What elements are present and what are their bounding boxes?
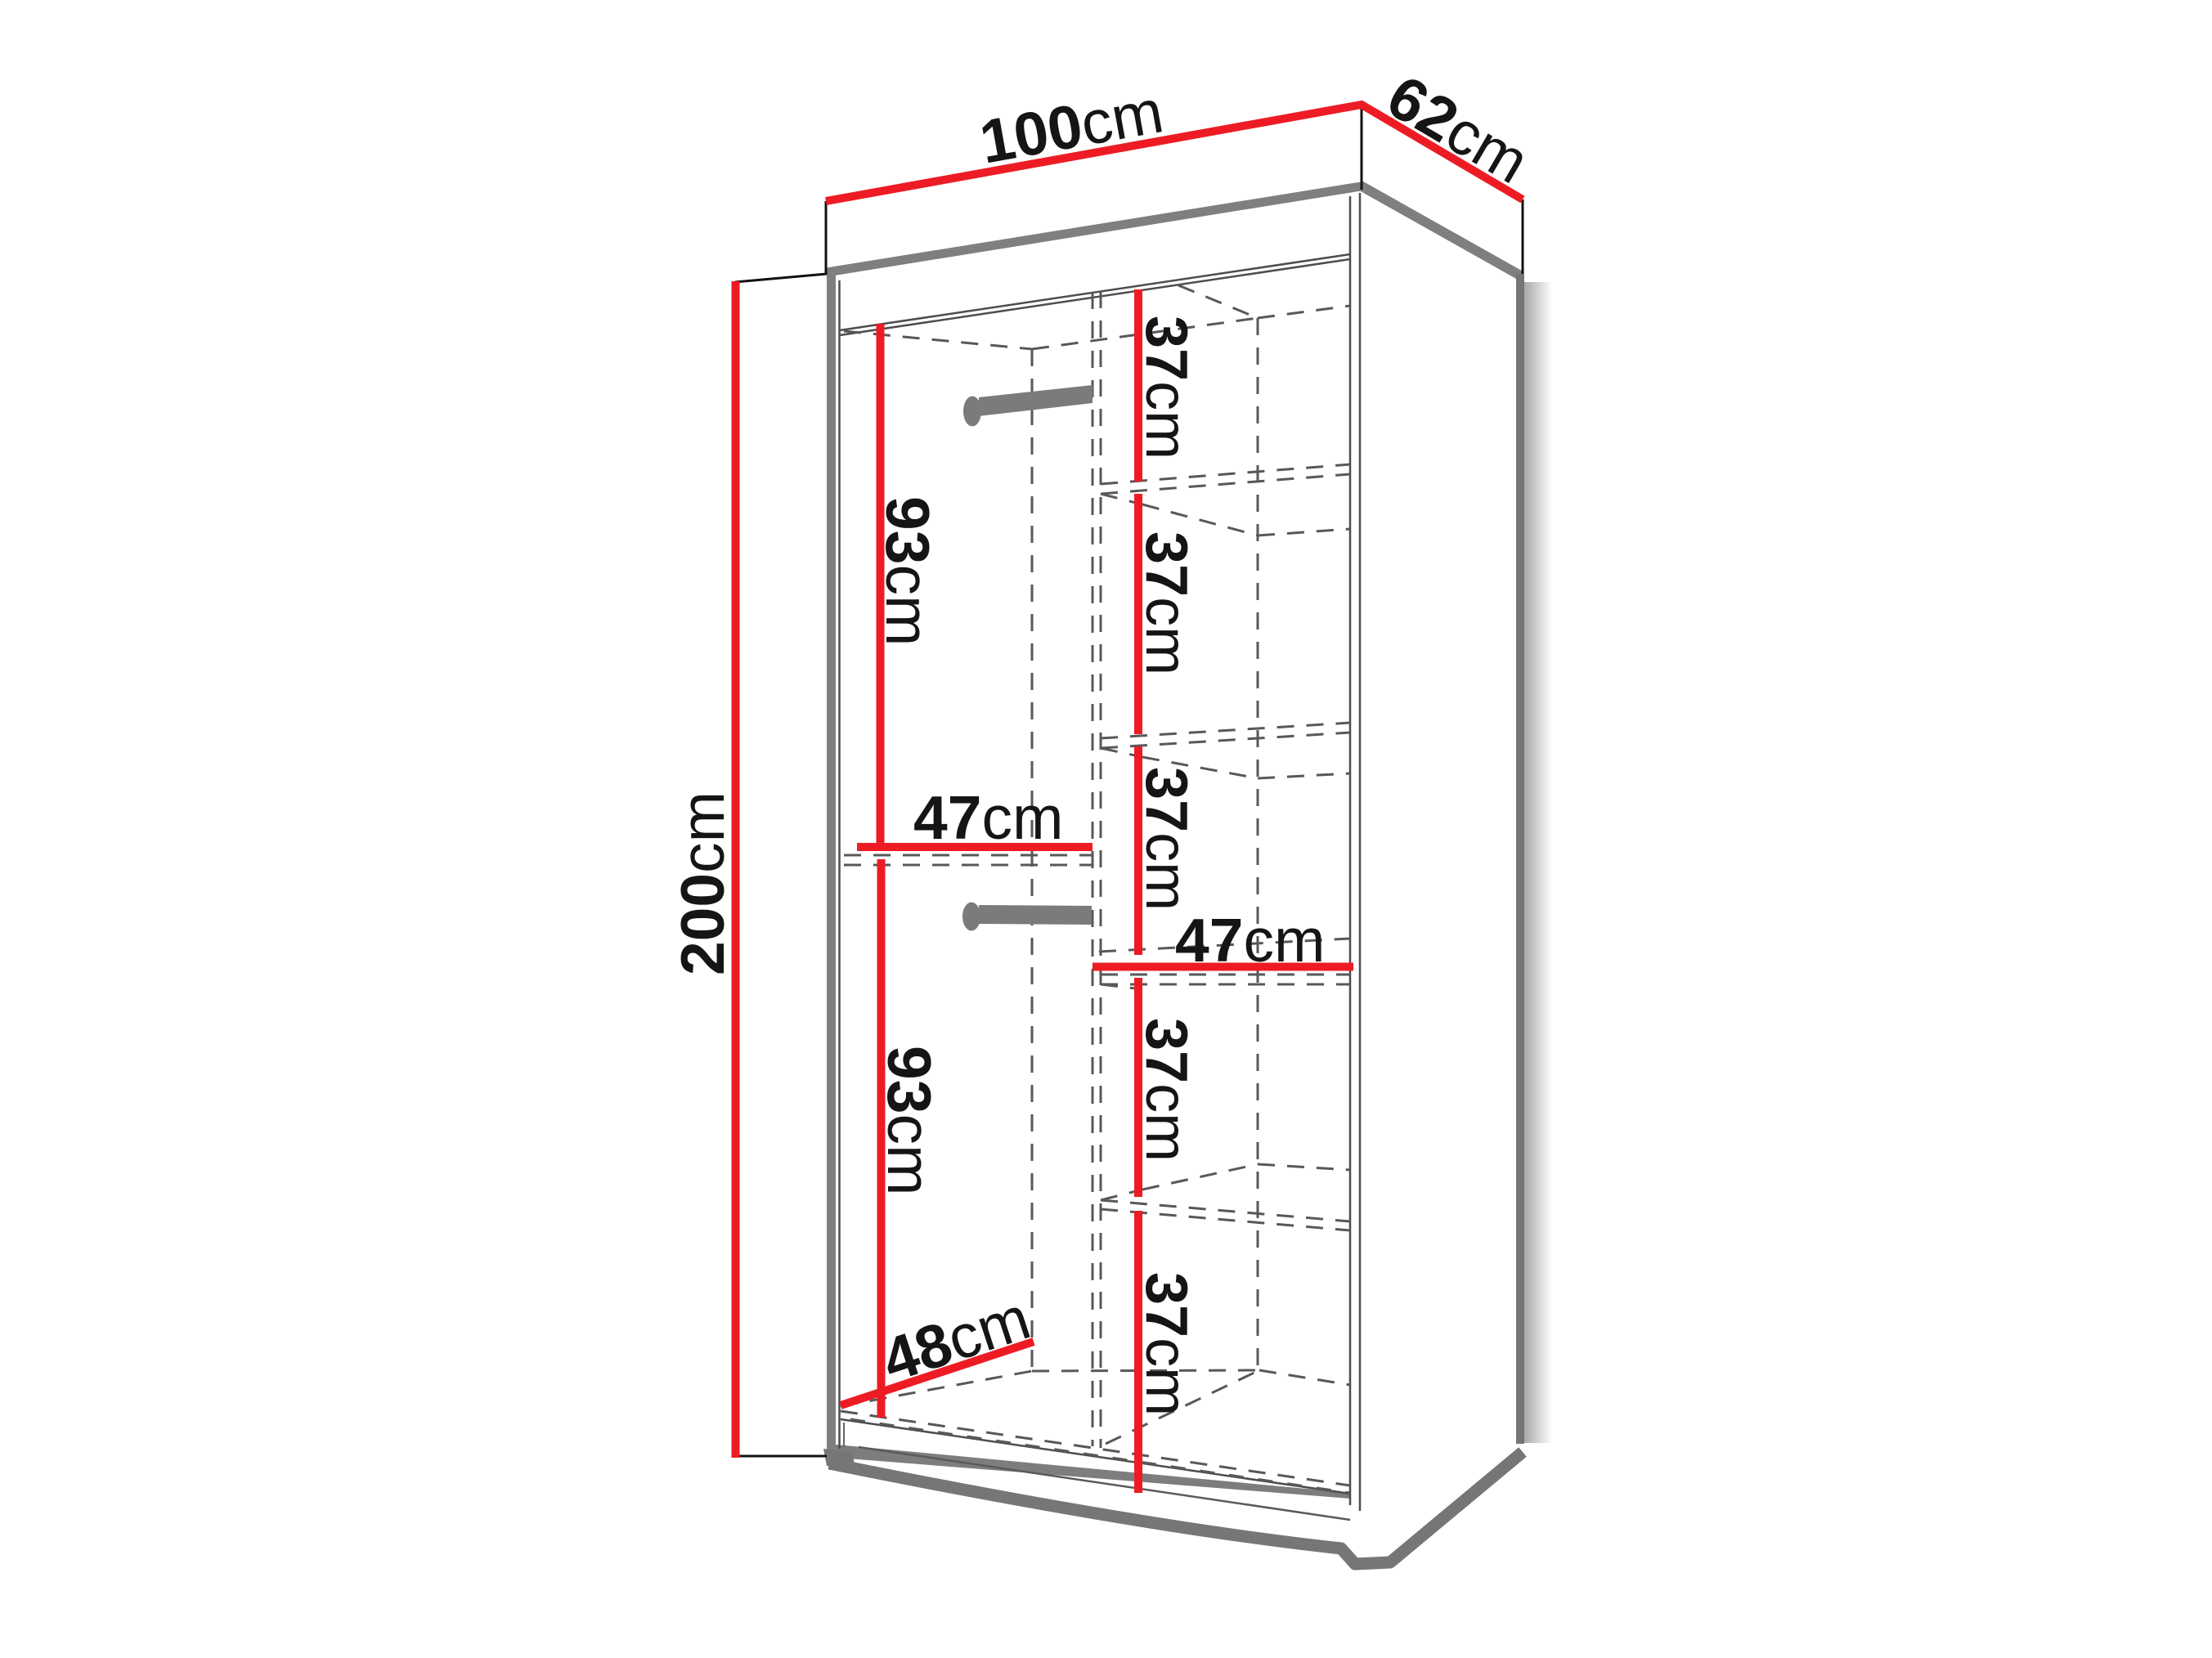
svg-text:37cm: 37cm [1133, 316, 1199, 459]
svg-text:200cm: 200cm [668, 791, 737, 975]
svg-text:93cm: 93cm [875, 1046, 944, 1195]
svg-text:37cm: 37cm [1133, 767, 1199, 911]
svg-text:47cm: 47cm [913, 783, 1063, 852]
svg-text:47cm: 47cm [1175, 906, 1325, 975]
svg-text:37cm: 37cm [1133, 531, 1199, 675]
svg-text:37cm: 37cm [1133, 1018, 1199, 1162]
svg-text:93cm: 93cm [873, 496, 942, 646]
svg-text:37cm: 37cm [1133, 1272, 1199, 1416]
